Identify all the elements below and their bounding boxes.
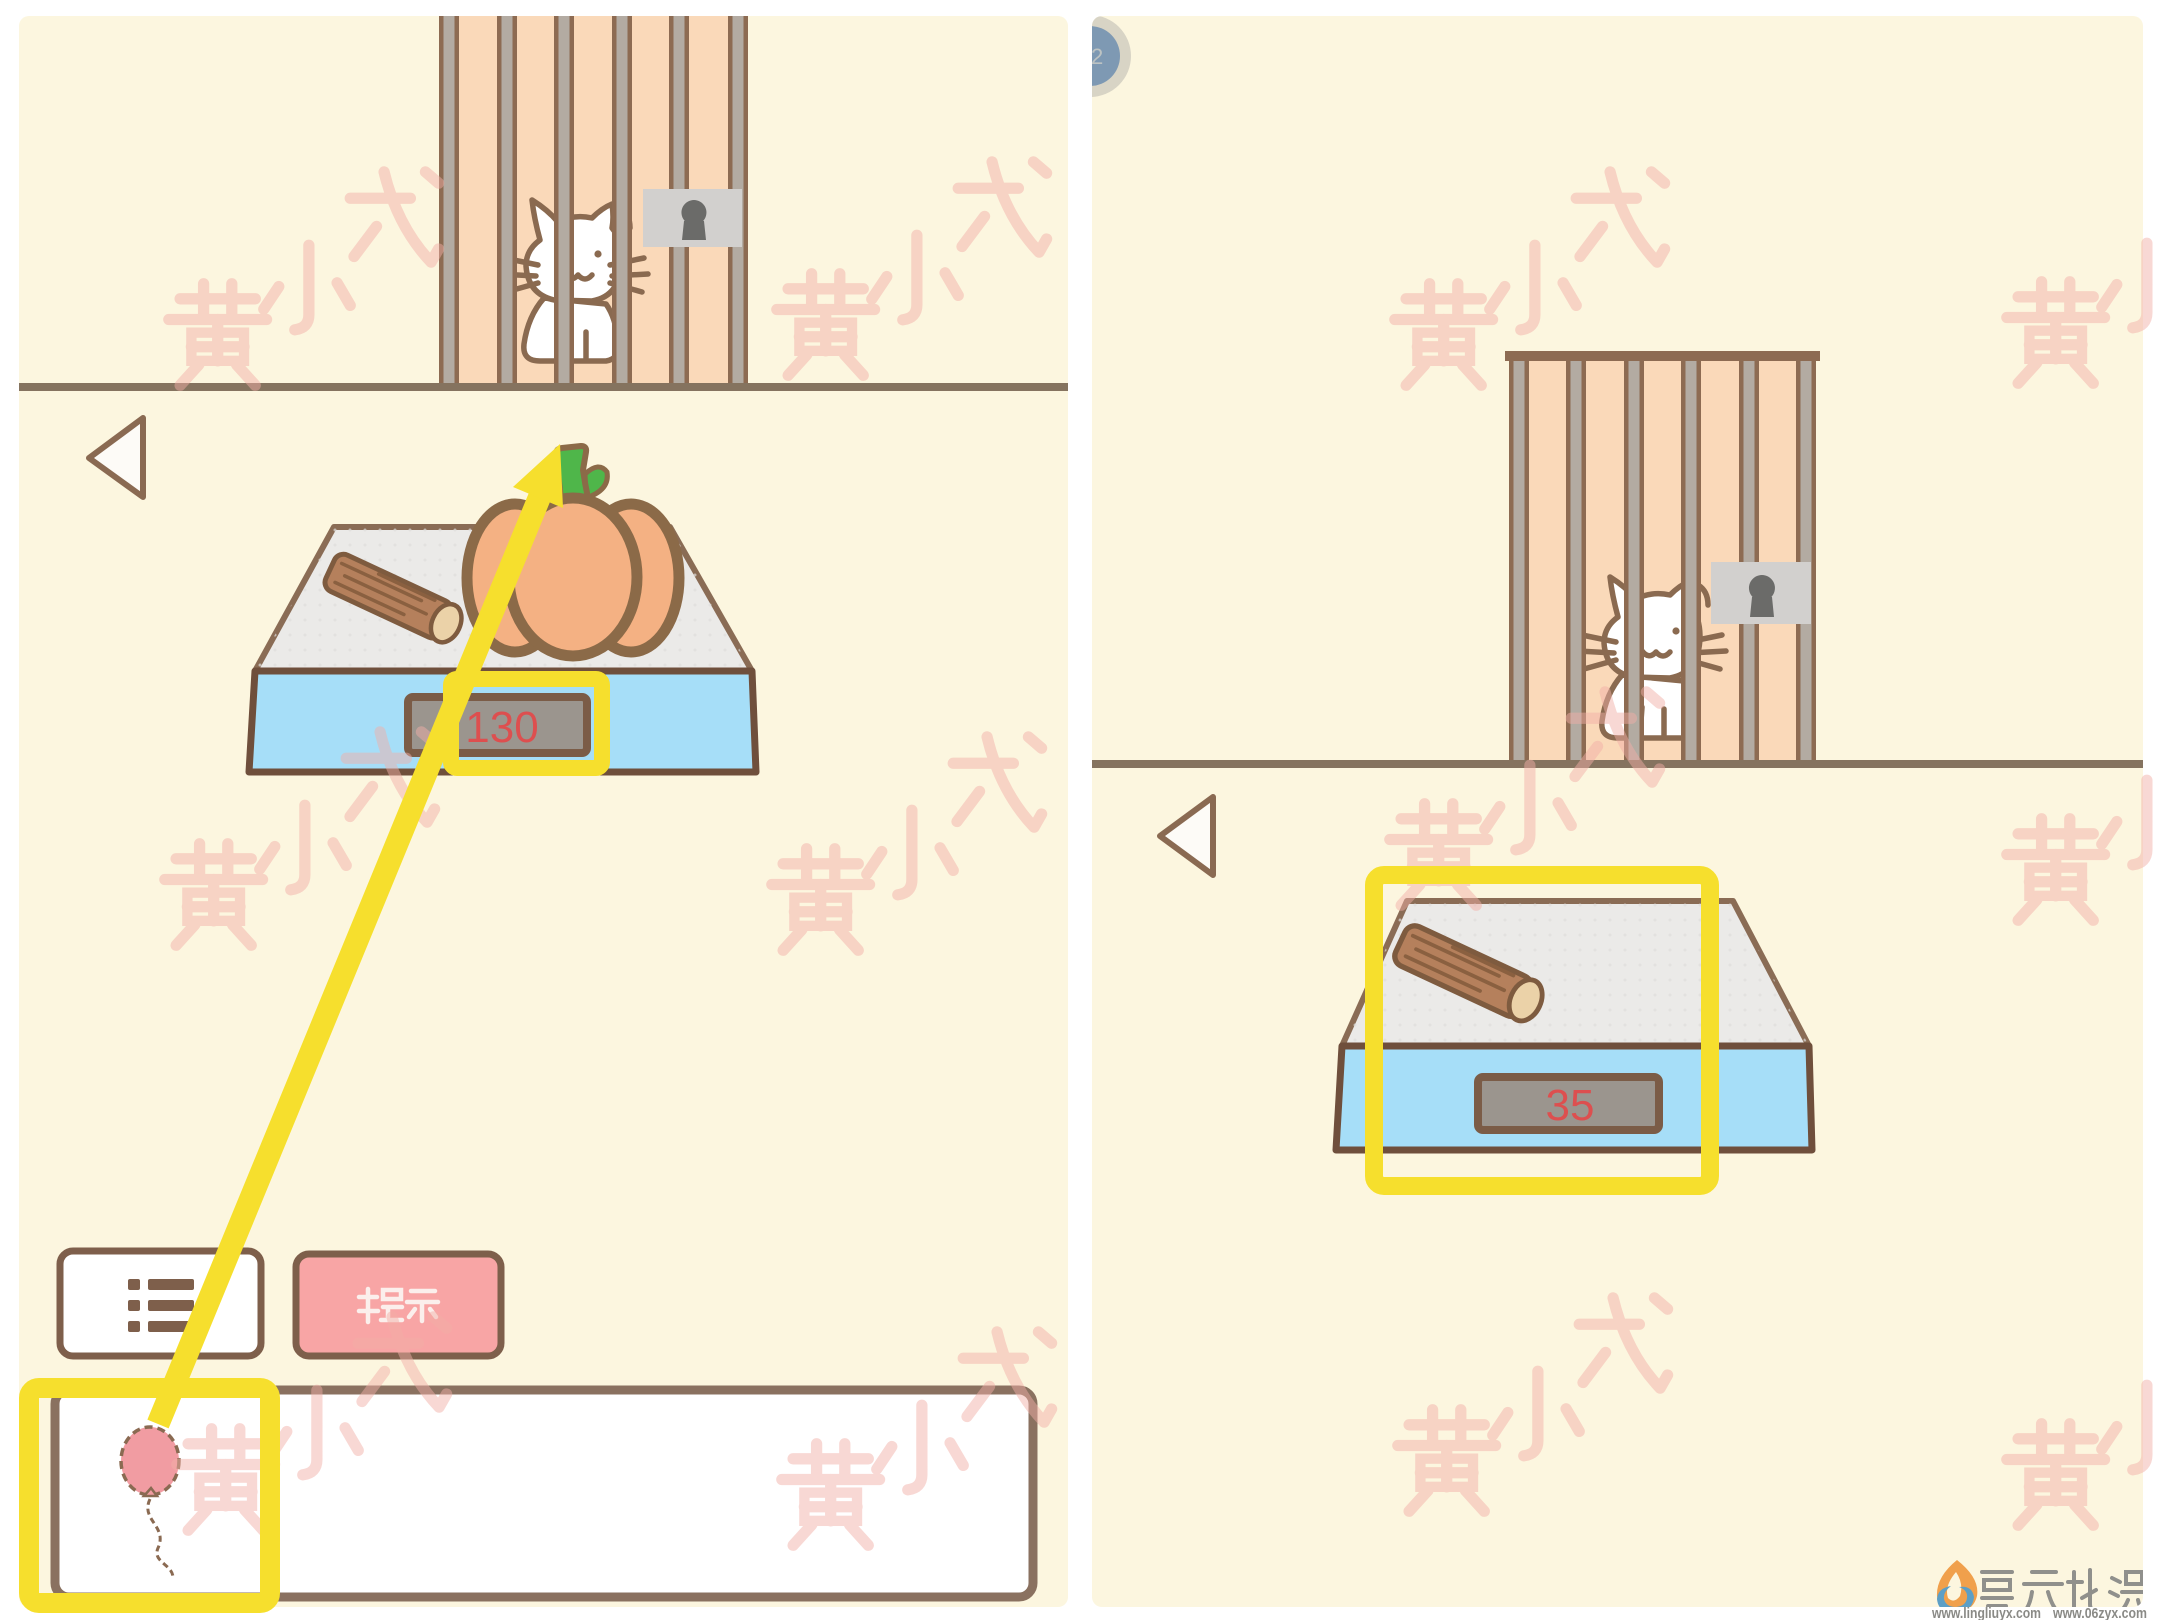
svg-text:www.lingliuyx.com: www.lingliuyx.com	[1931, 1605, 2041, 1620]
svg-text:www.06zyx.com: www.06zyx.com	[2052, 1605, 2147, 1620]
svg-text:130: 130	[465, 703, 538, 752]
svg-text:35: 35	[1546, 1081, 1595, 1130]
